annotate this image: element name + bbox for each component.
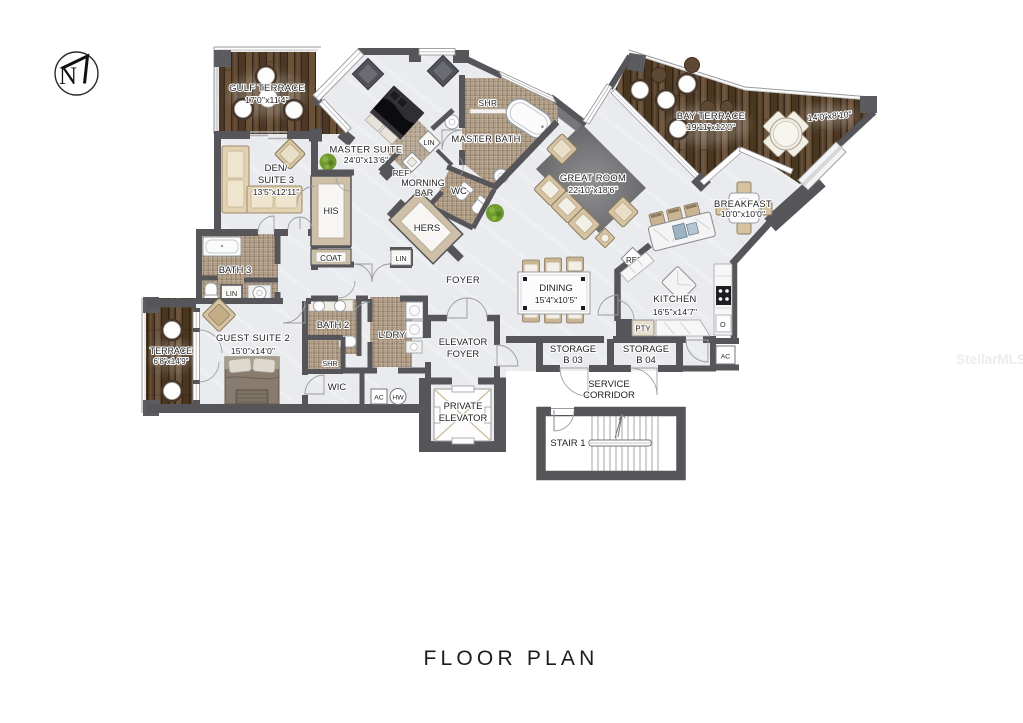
- svg-text:19'11"x12'0": 19'11"x12'0": [687, 122, 736, 132]
- svg-text:AC: AC: [721, 354, 731, 361]
- svg-text:16'5"x14'7": 16'5"x14'7": [653, 307, 697, 317]
- svg-text:22'10"x18'6": 22'10"x18'6": [568, 185, 617, 195]
- svg-text:SHR: SHR: [322, 359, 337, 368]
- svg-text:MASTER BATH: MASTER BATH: [451, 133, 520, 144]
- svg-text:O: O: [720, 320, 726, 329]
- svg-text:STORAGE: STORAGE: [550, 344, 596, 355]
- svg-text:WIC: WIC: [328, 382, 347, 393]
- svg-text:FOYER: FOYER: [447, 348, 480, 359]
- svg-text:REF: REF: [393, 168, 410, 178]
- svg-text:MASTER SUITE: MASTER SUITE: [330, 144, 403, 155]
- svg-text:MORNING: MORNING: [401, 178, 445, 188]
- svg-text:LIN: LIN: [226, 289, 237, 298]
- svg-text:SHR: SHR: [478, 98, 497, 108]
- svg-text:B 03: B 03: [563, 355, 583, 366]
- svg-text:PRIVATE: PRIVATE: [444, 400, 483, 411]
- svg-text:GREAT ROOM: GREAT ROOM: [560, 172, 626, 183]
- svg-text:L'DRY: L'DRY: [379, 330, 407, 341]
- svg-text:HIS: HIS: [323, 206, 338, 216]
- svg-text:CORRIDOR: CORRIDOR: [583, 390, 635, 401]
- svg-text:HERS: HERS: [414, 223, 440, 234]
- svg-text:BATH 3: BATH 3: [219, 265, 252, 276]
- svg-text:TERRACE: TERRACE: [150, 346, 192, 356]
- svg-text:BAY TERRACE: BAY TERRACE: [677, 110, 745, 121]
- svg-text:LIN: LIN: [423, 138, 434, 147]
- svg-text:ELEVATOR: ELEVATOR: [439, 336, 488, 347]
- svg-text:24'0"x13'6": 24'0"x13'6": [344, 155, 388, 165]
- svg-text:DEN/: DEN/: [265, 163, 288, 174]
- svg-text:17'0"x11'4": 17'0"x11'4": [245, 95, 289, 105]
- svg-text:DINING: DINING: [539, 283, 573, 294]
- svg-text:AC: AC: [374, 395, 384, 402]
- svg-text:STORAGE: STORAGE: [623, 344, 669, 355]
- svg-text:GULF TERRACE: GULF TERRACE: [229, 82, 305, 93]
- svg-text:BATH 2: BATH 2: [317, 320, 350, 331]
- svg-text:10'0"x10'0": 10'0"x10'0": [721, 209, 765, 219]
- svg-text:SUITE 3: SUITE 3: [258, 175, 294, 186]
- svg-text:StellarMLS: StellarMLS: [956, 352, 1023, 367]
- svg-text:15'4"x10'5": 15'4"x10'5": [535, 295, 577, 305]
- svg-text:BAR: BAR: [415, 188, 434, 198]
- svg-text:B 04: B 04: [636, 355, 656, 366]
- svg-text:6'8"x14'9": 6'8"x14'9": [154, 357, 189, 366]
- svg-text:FLOOR PLAN: FLOOR PLAN: [423, 647, 598, 670]
- svg-text:FOYER: FOYER: [446, 274, 480, 285]
- svg-text:13'5"x12'11": 13'5"x12'11": [253, 187, 300, 197]
- svg-text:SERVICE: SERVICE: [588, 379, 630, 390]
- svg-text:BREAKFAST: BREAKFAST: [714, 198, 772, 209]
- svg-text:COAT: COAT: [320, 254, 342, 263]
- svg-text:LIN: LIN: [395, 254, 406, 263]
- svg-text:15'0"x14'0": 15'0"x14'0": [231, 346, 275, 356]
- svg-text:WC: WC: [451, 186, 467, 197]
- svg-text:KITCHEN: KITCHEN: [653, 293, 696, 304]
- svg-text:GUEST SUITE 2: GUEST SUITE 2: [216, 332, 290, 343]
- svg-text:ELEVATOR: ELEVATOR: [439, 412, 488, 423]
- svg-text:STAIR 1: STAIR 1: [550, 438, 585, 449]
- svg-text:HW: HW: [392, 395, 404, 402]
- svg-text:PTY: PTY: [635, 325, 651, 334]
